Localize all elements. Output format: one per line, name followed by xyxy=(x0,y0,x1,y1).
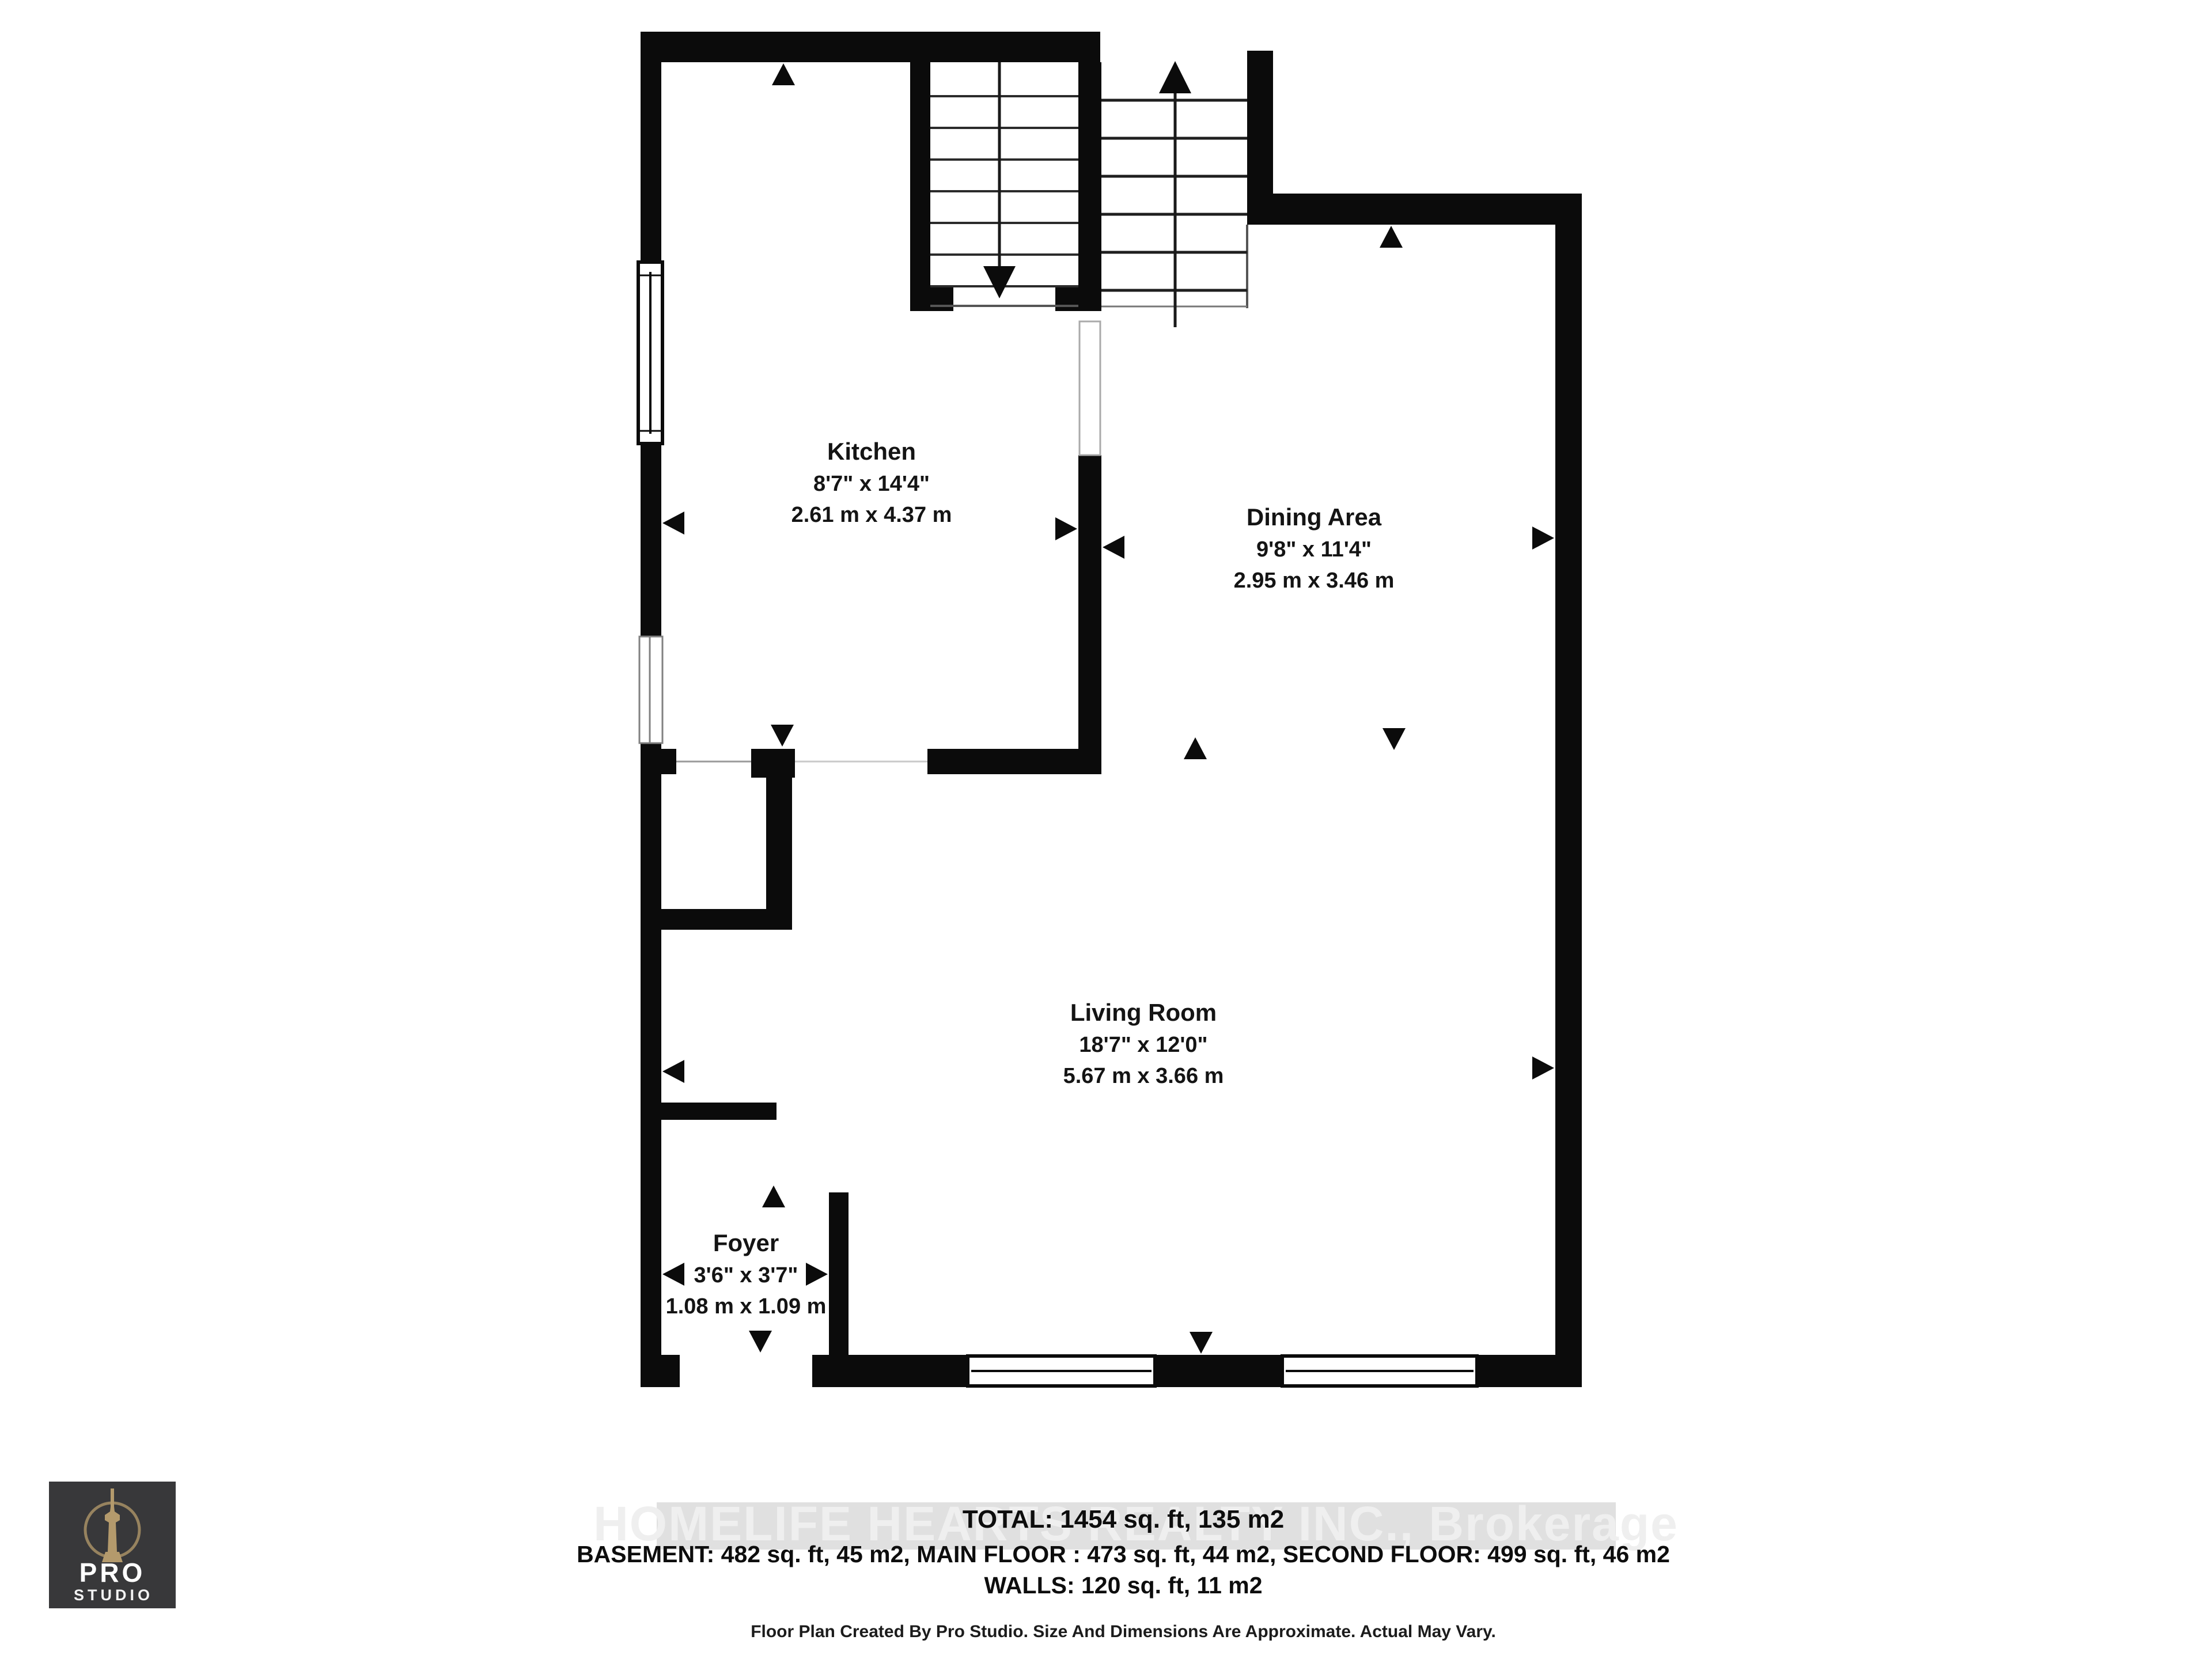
foyer-imperial: 3'6" x 3'7" xyxy=(694,1263,798,1287)
living-name: Living Room xyxy=(1070,999,1217,1026)
kitchen-dim-up-arrow-icon xyxy=(772,63,795,85)
wall-kitchen-bottom xyxy=(927,749,1101,774)
wall-left-upper xyxy=(641,32,661,262)
window-bottom-right xyxy=(1282,1356,1477,1386)
wall-hall-divider xyxy=(661,1103,777,1120)
foyer-dim-right-arrow-icon xyxy=(806,1263,828,1286)
room-label-dining: Dining Area 9'8" x 11'4" 2.95 m x 3.46 m xyxy=(1234,503,1395,593)
dimension-arrows xyxy=(662,63,1554,1354)
floorplan-page: Kitchen 8'7" x 14'4" 2.61 m x 4.37 m Din… xyxy=(0,0,2212,1659)
wall-closet-vertical xyxy=(766,778,792,930)
opening-divider-doorway xyxy=(1080,321,1100,455)
wall-closet-arm xyxy=(661,909,792,930)
dining-dim-right-arrow-icon xyxy=(1532,527,1554,550)
room-label-foyer: Foyer 3'6" x 3'7" 1.08 m x 1.09 m xyxy=(666,1229,827,1319)
wall-closet-post xyxy=(751,749,795,778)
footer-walls: WALLS: 120 sq. ft, 11 m2 xyxy=(984,1572,1262,1599)
foyer-dim-up-arrow-icon xyxy=(762,1185,785,1207)
living-imperial: 18'7" x 12'0" xyxy=(1079,1033,1207,1057)
floorplan-canvas: Kitchen 8'7" x 14'4" 2.61 m x 4.37 m Din… xyxy=(0,0,2212,1659)
wall-stair-left xyxy=(910,62,930,311)
kitchen-metric: 2.61 m x 4.37 m xyxy=(791,503,952,527)
living-metric: 5.67 m x 3.66 m xyxy=(1063,1064,1224,1088)
dining-imperial: 9'8" x 11'4" xyxy=(1256,537,1372,562)
kitchen-dim-down-arrow-icon xyxy=(771,725,794,747)
wall-left-lower xyxy=(641,743,661,1387)
wall-dining-top xyxy=(1247,194,1582,225)
living-dim-up-arrow-icon xyxy=(1184,737,1207,759)
kitchen-name: Kitchen xyxy=(827,438,916,465)
wall-stair-foot-left xyxy=(930,287,953,311)
stairs-up-arrow-icon xyxy=(1159,61,1191,93)
room-label-kitchen: Kitchen 8'7" x 14'4" 2.61 m x 4.37 m xyxy=(791,438,952,527)
wall-top xyxy=(641,32,1100,62)
wall-bottom-d xyxy=(1477,1355,1582,1387)
foyer-dim-down-arrow-icon xyxy=(749,1331,772,1353)
wall-kitchen-dining-divider xyxy=(1078,455,1101,774)
wall-bottom-b xyxy=(812,1355,968,1387)
living-dim-down-arrow-icon xyxy=(1190,1332,1213,1354)
windows xyxy=(638,262,1477,1386)
wall-foyer-right xyxy=(829,1192,849,1355)
dining-name: Dining Area xyxy=(1247,503,1382,531)
pro-studio-logo: PRO STUDIO xyxy=(49,1482,176,1608)
wall-left-middle xyxy=(641,444,661,637)
foyer-name: Foyer xyxy=(713,1229,779,1256)
foyer-dim-left-arrow-icon xyxy=(662,1263,684,1286)
wall-bottom-a xyxy=(641,1355,680,1387)
kitchen-dim-left-arrow-icon xyxy=(662,512,684,535)
window-bottom-left xyxy=(968,1356,1155,1386)
stairs-down-arrow-icon xyxy=(983,266,1016,298)
wall-kitchen-bottom-stub xyxy=(661,749,676,774)
footer-disclaimer: Floor Plan Created By Pro Studio. Size A… xyxy=(751,1622,1496,1641)
footer-floors: BASEMENT: 482 sq. ft, 45 m2, MAIN FLOOR … xyxy=(577,1541,1670,1567)
living-dim-left-arrow-icon xyxy=(662,1060,684,1083)
room-label-living: Living Room 18'7" x 12'0" 5.67 m x 3.66 … xyxy=(1063,999,1224,1088)
staircase-up xyxy=(1101,61,1247,327)
dining-dim-left-arrow-icon xyxy=(1103,536,1124,559)
dining-dim-up-arrow-icon xyxy=(1380,226,1403,248)
window-left-kitchen xyxy=(638,262,662,444)
logo-line2: STUDIO xyxy=(74,1586,153,1604)
logo-line1: PRO xyxy=(79,1558,146,1588)
wall-stair-foot-right xyxy=(1055,287,1078,311)
foyer-metric: 1.08 m x 1.09 m xyxy=(666,1294,827,1319)
staircase-down xyxy=(930,62,1078,298)
dining-metric: 2.95 m x 3.46 m xyxy=(1234,569,1395,593)
dining-dim-down-arrow-icon xyxy=(1382,728,1406,750)
wall-bottom-c xyxy=(1155,1355,1282,1387)
kitchen-imperial: 8'7" x 14'4" xyxy=(813,472,930,496)
window-left-closet xyxy=(639,637,662,743)
wall-right xyxy=(1555,194,1582,1387)
wall-stair-right xyxy=(1078,62,1101,311)
living-dim-right-arrow-icon xyxy=(1532,1056,1554,1080)
openings xyxy=(676,225,1247,762)
footer-total: TOTAL: 1454 sq. ft, 135 m2 xyxy=(963,1505,1284,1533)
walls xyxy=(641,32,1582,1387)
kitchen-dim-right-arrow-icon xyxy=(1055,517,1077,540)
